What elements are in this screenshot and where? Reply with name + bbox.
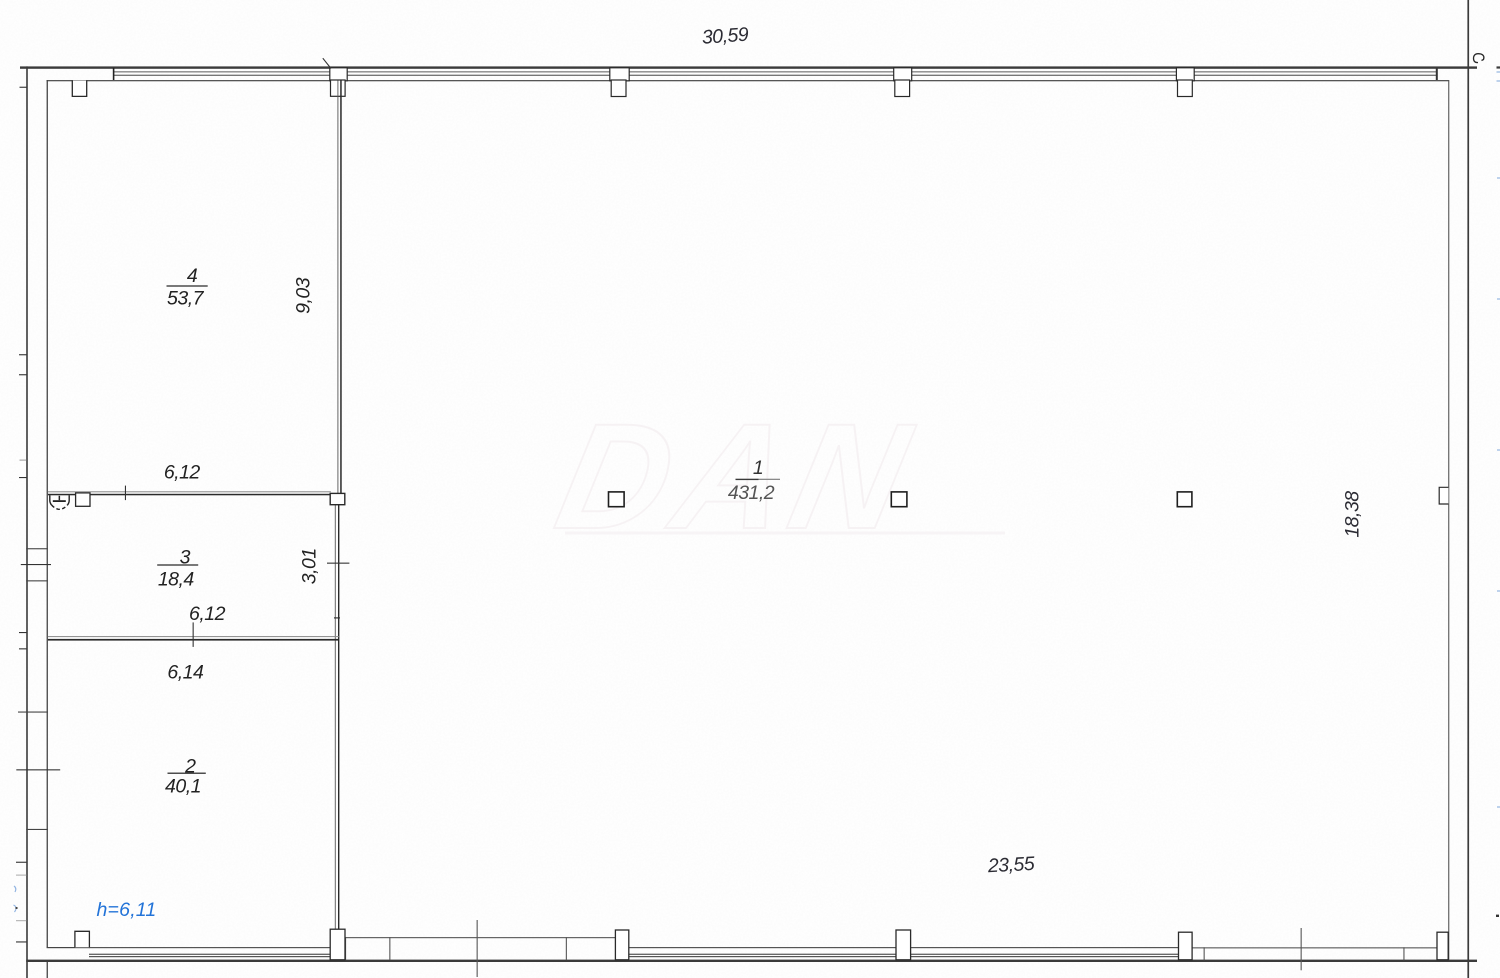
svg-text:9,03: 9,03 [292,277,314,314]
svg-text:18,38: 18,38 [1342,491,1364,538]
svg-text:DAN: DAN [544,394,928,561]
svg-text:431,2: 431,2 [728,482,775,504]
svg-text:6,14: 6,14 [167,662,204,684]
svg-text:6,12: 6,12 [189,603,226,625]
svg-text:23,55: 23,55 [986,853,1035,877]
svg-text:40,1: 40,1 [165,775,201,797]
svg-text:4: 4 [187,265,198,287]
svg-text:18,4: 18,4 [158,568,195,590]
svg-text:6,12: 6,12 [164,462,201,484]
svg-text:30,59: 30,59 [701,24,749,49]
svg-text:3,01: 3,01 [298,548,320,584]
svg-text:1: 1 [753,457,763,479]
svg-text:53,7: 53,7 [167,287,205,309]
svg-text:h=6,11: h=6,11 [97,899,157,921]
svg-text:2: 2 [184,755,196,777]
